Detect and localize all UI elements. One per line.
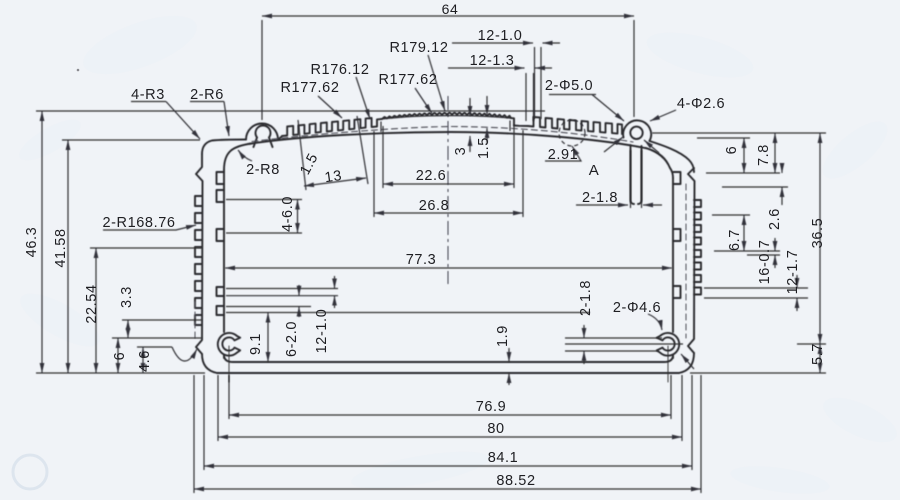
svg-text:16-0.7: 16-0.7 xyxy=(757,240,773,285)
svg-text:22.54: 22.54 xyxy=(84,284,100,323)
svg-text:36.5: 36.5 xyxy=(810,218,826,249)
svg-text:2-1.8: 2-1.8 xyxy=(582,190,618,206)
svg-text:2-Φ5.0: 2-Φ5.0 xyxy=(545,78,593,94)
svg-text:2-R6: 2-R6 xyxy=(190,87,224,103)
svg-text:9.1: 9.1 xyxy=(248,333,264,355)
svg-text:R177.62: R177.62 xyxy=(280,80,339,96)
svg-text:64: 64 xyxy=(442,1,459,17)
svg-text:4-6.0: 4-6.0 xyxy=(280,196,296,232)
svg-text:6: 6 xyxy=(112,352,128,361)
svg-text:5.7: 5.7 xyxy=(810,343,826,365)
svg-text:1.5: 1.5 xyxy=(476,137,492,159)
svg-text:6-2.0: 6-2.0 xyxy=(284,321,300,357)
svg-text:3: 3 xyxy=(453,147,469,156)
svg-text:88.52: 88.52 xyxy=(496,473,535,489)
svg-text:76.9: 76.9 xyxy=(476,399,507,415)
svg-text:R179.12: R179.12 xyxy=(389,40,448,56)
svg-text:26.8: 26.8 xyxy=(419,198,450,214)
svg-text:A: A xyxy=(589,162,600,179)
svg-text:6: 6 xyxy=(724,146,740,155)
svg-text:84.1: 84.1 xyxy=(488,450,519,466)
svg-text:3.3: 3.3 xyxy=(119,286,135,308)
svg-text:2-R168.76: 2-R168.76 xyxy=(102,215,175,231)
svg-text:12-1.3: 12-1.3 xyxy=(470,53,515,69)
svg-text:4-Φ2.6: 4-Φ2.6 xyxy=(677,96,725,112)
svg-text:46.3: 46.3 xyxy=(24,227,40,258)
svg-text:80: 80 xyxy=(487,421,504,437)
svg-text:22.6: 22.6 xyxy=(416,168,447,184)
svg-text:12-1.0: 12-1.0 xyxy=(314,309,330,354)
svg-text:4-R3: 4-R3 xyxy=(131,87,165,103)
svg-text:R176.12: R176.12 xyxy=(310,62,369,78)
svg-text:2.91: 2.91 xyxy=(548,147,579,163)
svg-text:12-1.0: 12-1.0 xyxy=(478,28,523,44)
svg-text:12-1.7: 12-1.7 xyxy=(785,250,801,295)
svg-text:7.8: 7.8 xyxy=(756,144,772,166)
svg-text:2-R8: 2-R8 xyxy=(246,162,280,178)
svg-text:13: 13 xyxy=(324,168,343,186)
svg-text:77.3: 77.3 xyxy=(406,252,437,268)
svg-text:2.6: 2.6 xyxy=(767,208,783,230)
svg-text:41.58: 41.58 xyxy=(53,228,69,267)
svg-text:R177.62: R177.62 xyxy=(378,72,437,88)
svg-text:2-1.8: 2-1.8 xyxy=(578,280,594,316)
svg-text:1.9: 1.9 xyxy=(495,325,511,347)
svg-text:2-Φ4.6: 2-Φ4.6 xyxy=(613,300,661,316)
svg-text:4.6: 4.6 xyxy=(137,350,153,372)
svg-text:6.7: 6.7 xyxy=(727,229,743,251)
